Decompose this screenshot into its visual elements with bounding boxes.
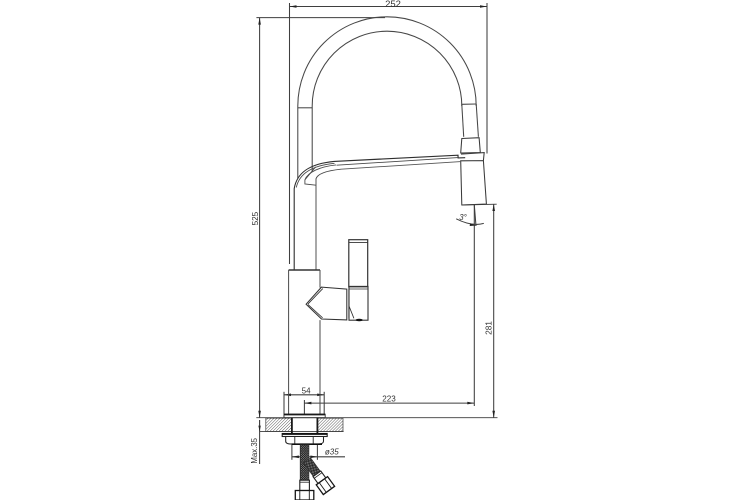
svg-text:223: 223	[382, 395, 396, 404]
svg-text:3°: 3°	[459, 213, 466, 222]
svg-text:54: 54	[302, 386, 311, 395]
svg-text:525: 525	[251, 211, 260, 225]
svg-text:Max.35: Max.35	[250, 437, 259, 463]
svg-text:281: 281	[484, 321, 494, 335]
svg-text:ø35: ø35	[325, 448, 339, 457]
svg-text:252: 252	[385, 0, 401, 10]
